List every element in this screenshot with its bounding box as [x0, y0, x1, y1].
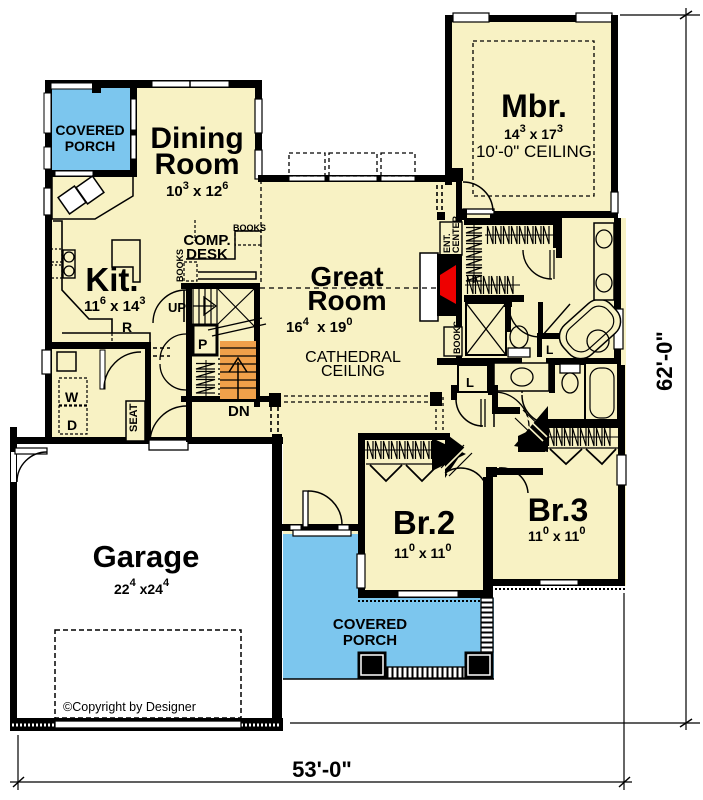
svg-text:CENTER: CENTER [451, 215, 461, 253]
svg-text:53'-0": 53'-0" [292, 757, 352, 782]
svg-text:143 x 173: 143 x 173 [504, 123, 563, 142]
svg-text:Br.2: Br.2 [393, 504, 455, 541]
svg-text:Kit.: Kit. [85, 261, 138, 298]
svg-text:164 x 190: 164 x 190 [286, 316, 352, 336]
svg-text:DN: DN [228, 403, 250, 420]
svg-text:L: L [466, 375, 474, 390]
svg-text:Br.3: Br.3 [528, 492, 588, 528]
svg-text:Garage: Garage [93, 539, 200, 574]
svg-text:D: D [67, 417, 77, 433]
svg-text:Mbr.: Mbr. [501, 88, 567, 124]
svg-text:CEILING: CEILING [321, 363, 385, 380]
svg-text:R: R [122, 319, 132, 335]
svg-text:L: L [546, 343, 553, 357]
svg-text:COVERED: COVERED [55, 122, 124, 138]
svg-text:BOOKS: BOOKS [233, 223, 266, 233]
svg-text:Room: Room [307, 285, 386, 316]
svg-text:SEAT: SEAT [128, 403, 140, 432]
svg-text:103 x 126: 103 x 126 [166, 180, 228, 200]
svg-text:BOOKS: BOOKS [175, 249, 185, 282]
svg-text:P: P [198, 336, 207, 352]
svg-text:Room: Room [155, 148, 240, 181]
svg-text:DESK: DESK [186, 246, 228, 263]
svg-text:W: W [65, 389, 79, 405]
svg-text:BOOKS: BOOKS [452, 321, 462, 354]
svg-text:62'-0": 62'-0" [652, 331, 677, 391]
svg-text:©Copyright by Designer: ©Copyright by Designer [63, 700, 196, 714]
svg-text:10'-0" CEILING: 10'-0" CEILING [476, 142, 592, 161]
svg-text:110 x 110: 110 x 110 [394, 542, 451, 561]
svg-text:PORCH: PORCH [343, 632, 397, 649]
svg-text:COVERED: COVERED [333, 616, 407, 633]
svg-text:110 x 110: 110 x 110 [528, 525, 585, 544]
svg-text:116 x 143: 116 x 143 [84, 295, 145, 315]
svg-text:PORCH: PORCH [65, 138, 116, 154]
